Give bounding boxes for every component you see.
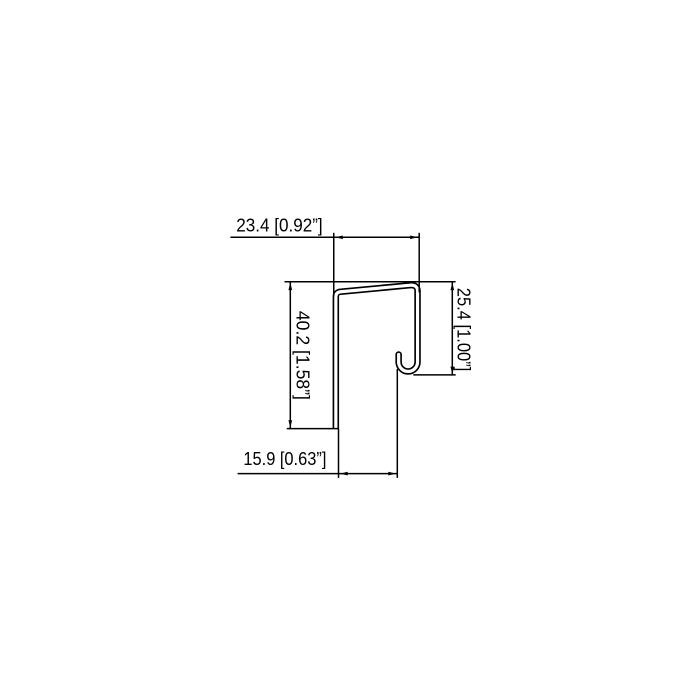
svg-text:23.4 [0.92”]: 23.4 [0.92”] xyxy=(236,215,323,236)
svg-text:40.2 [1.58”]: 40.2 [1.58”] xyxy=(292,311,313,400)
svg-text:15.9 [0.63”]: 15.9 [0.63”] xyxy=(243,449,326,470)
svg-text:25.4 [1.00”]: 25.4 [1.00”] xyxy=(453,288,474,372)
